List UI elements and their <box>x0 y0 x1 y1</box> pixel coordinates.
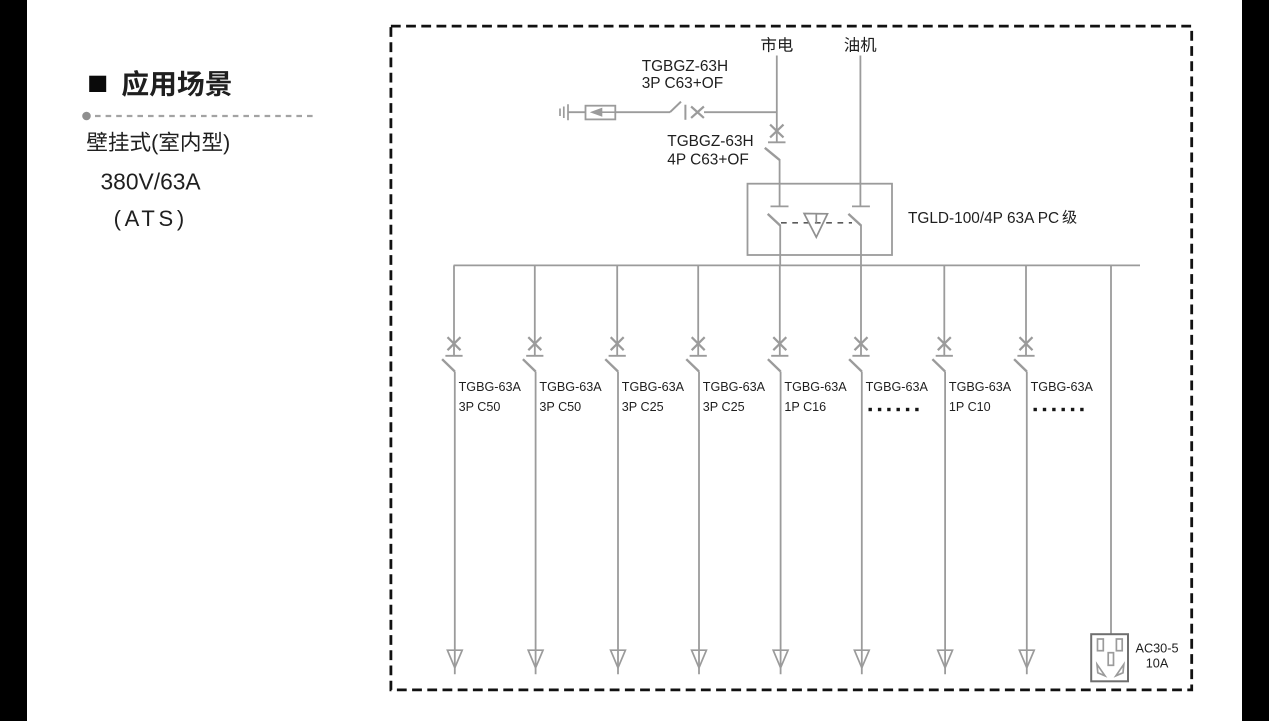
svg-text:3P C25: 3P C25 <box>703 400 745 414</box>
svg-text:TGBG-63A: TGBG-63A <box>1031 380 1094 394</box>
svg-text:1P C10: 1P C10 <box>949 400 991 414</box>
svg-text:TGBG-63A: TGBG-63A <box>949 380 1012 394</box>
svg-text:3P C50: 3P C50 <box>539 400 581 414</box>
svg-text:3P C25: 3P C25 <box>622 400 664 414</box>
svg-text:380V/63A: 380V/63A <box>101 169 202 195</box>
svg-text:(ATS): (ATS) <box>114 206 188 231</box>
svg-text:TGBG-63A: TGBG-63A <box>459 380 522 394</box>
svg-text:3P C50: 3P C50 <box>459 400 501 414</box>
svg-text:10A: 10A <box>1146 657 1169 671</box>
svg-text:TGBGZ-63H: TGBGZ-63H <box>642 58 728 75</box>
svg-text:TGBG-63A: TGBG-63A <box>703 380 766 394</box>
svg-text:TGBGZ-63H: TGBGZ-63H <box>667 133 753 150</box>
svg-text:AC30-5: AC30-5 <box>1135 642 1178 656</box>
svg-text:TGLD-100/4P 63A PC: TGLD-100/4P 63A PC <box>908 210 1059 227</box>
svg-text:1P C16: 1P C16 <box>784 400 826 414</box>
svg-text:TGBG-63A: TGBG-63A <box>784 380 847 394</box>
svg-text:TGBG-63A: TGBG-63A <box>866 380 929 394</box>
svg-text:TGBG-63A: TGBG-63A <box>539 380 602 394</box>
svg-text:4P C63+OF: 4P C63+OF <box>667 152 748 169</box>
svg-text:3P C63+OF: 3P C63+OF <box>642 75 723 92</box>
svg-text:TGBG-63A: TGBG-63A <box>622 380 685 394</box>
